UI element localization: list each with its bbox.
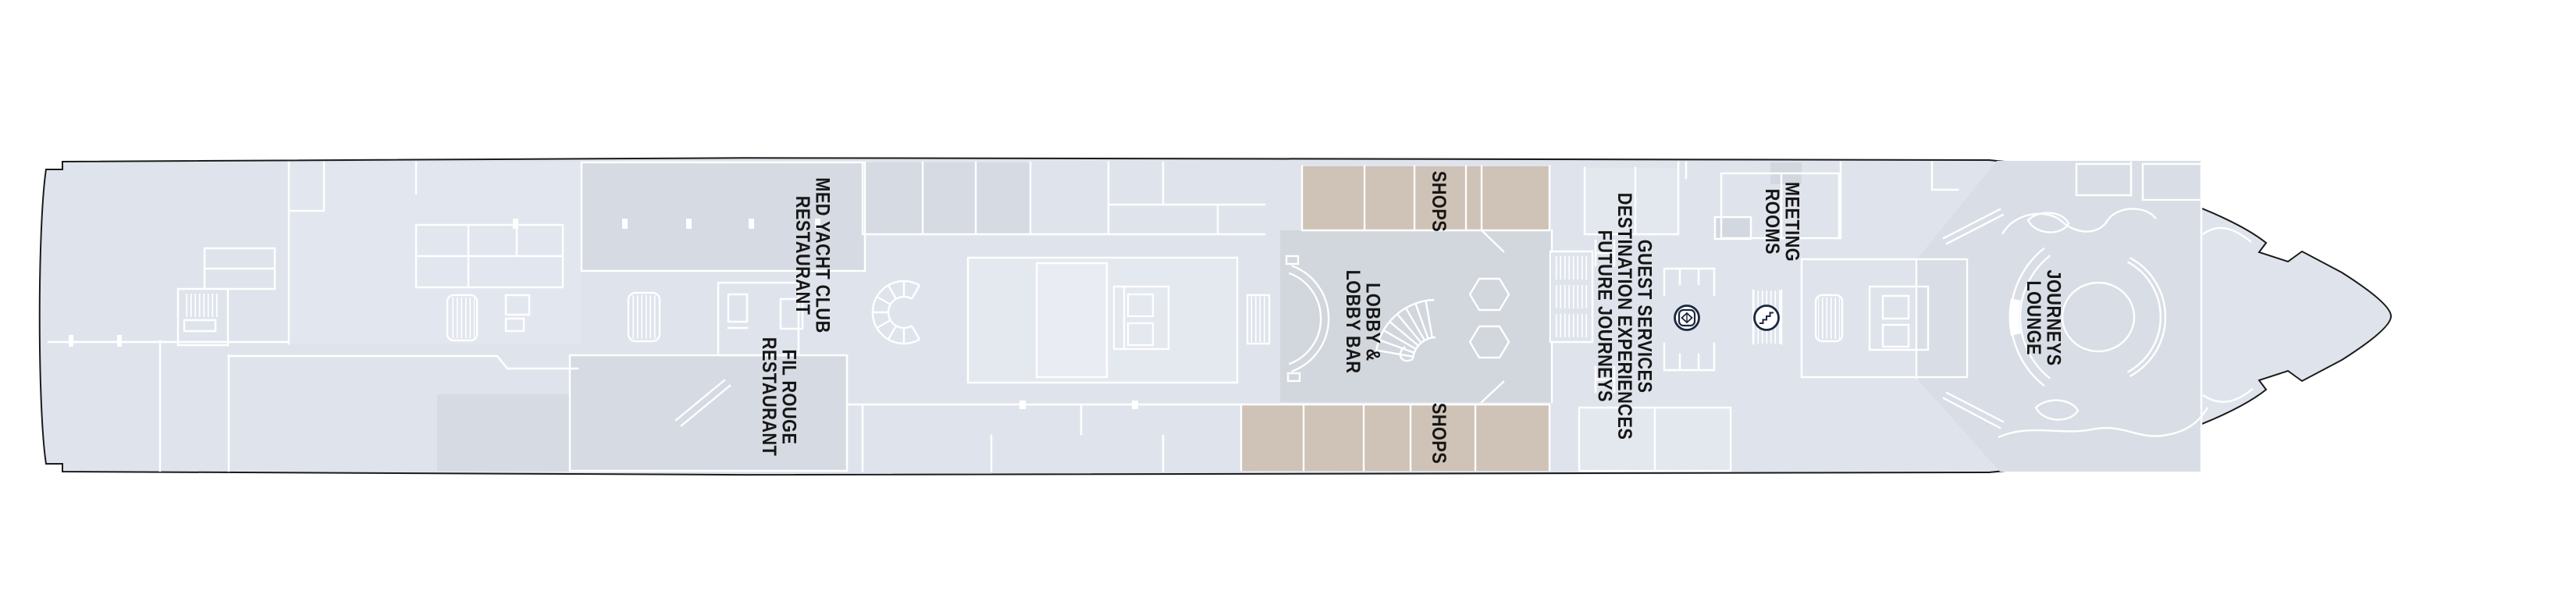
- label-meeting-rooms: MEETING ROOMS: [1762, 182, 1802, 262]
- label-lobby-and-lobby-bar: LOBBY & LOBBY BAR: [1343, 270, 1382, 374]
- fil-rouge-area: [570, 355, 847, 471]
- label-journeys-lounge: JOURNEYS LOUNGE: [2023, 269, 2063, 365]
- deck-plan-figure: MED YACHT CLUB RESTAURANT FIL ROUGE REST…: [0, 0, 2576, 602]
- stairs-icon: [1755, 306, 1779, 330]
- label-shops-bottom: SHOPS: [1428, 403, 1448, 464]
- shops-area-bottom: [1241, 404, 1550, 471]
- elevator-icon: [1675, 306, 1699, 330]
- label-guest-services: GUEST SERVICES DESTINATION EXPERIENCES F…: [1594, 193, 1654, 440]
- ship-deck-plan: [0, 0, 2576, 602]
- label-fil-rouge-restaurant: FIL ROUGE RESTAURANT: [759, 337, 799, 457]
- label-med-yacht-club-restaurant: MED YACHT CLUB RESTAURANT: [792, 177, 832, 333]
- label-shops-top: SHOPS: [1428, 171, 1448, 232]
- shops-area-top: [1302, 166, 1550, 230]
